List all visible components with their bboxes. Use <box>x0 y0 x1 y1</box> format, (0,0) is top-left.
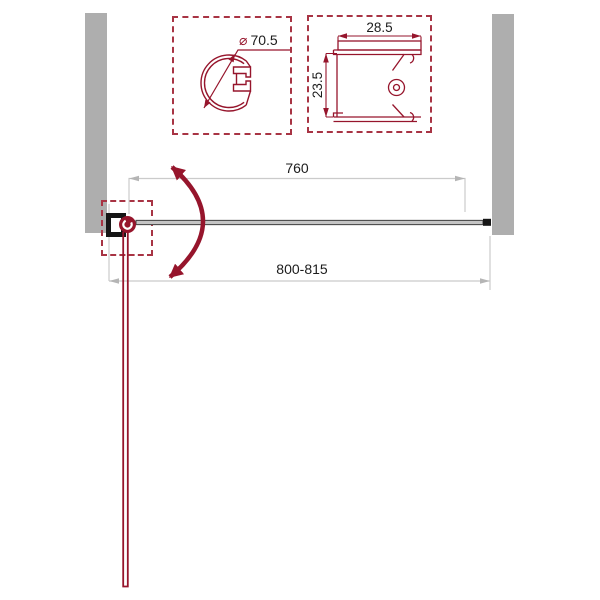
dim-line-760 <box>129 176 465 214</box>
diameter-symbol: ⌀ <box>239 32 247 48</box>
door-open-position-line <box>122 232 128 587</box>
diameter-label: ⌀70.5 <box>239 33 278 47</box>
hinge-assembly <box>106 213 136 237</box>
total-width-dimension-label: 800-815 <box>242 262 362 276</box>
glass-end-cap <box>483 219 491 226</box>
dim-line-23-5 <box>323 54 337 118</box>
circle-profile-drawing <box>201 50 290 111</box>
dim-line-800-815 <box>109 204 490 290</box>
section-profile-drawing <box>323 33 421 121</box>
glass-panel-line <box>136 219 491 226</box>
profile-depth-label: 23.5 <box>311 65 325 105</box>
technical-drawing-canvas: ⌀70.5 28.5 23.5 760 800-815 <box>0 0 600 600</box>
diameter-value: 70.5 <box>250 32 277 48</box>
glass-width-dimension-label: 760 <box>257 161 337 175</box>
drawing-linework <box>0 0 600 600</box>
profile-width-label: 28.5 <box>338 21 421 35</box>
hinge-pivot <box>119 216 136 233</box>
